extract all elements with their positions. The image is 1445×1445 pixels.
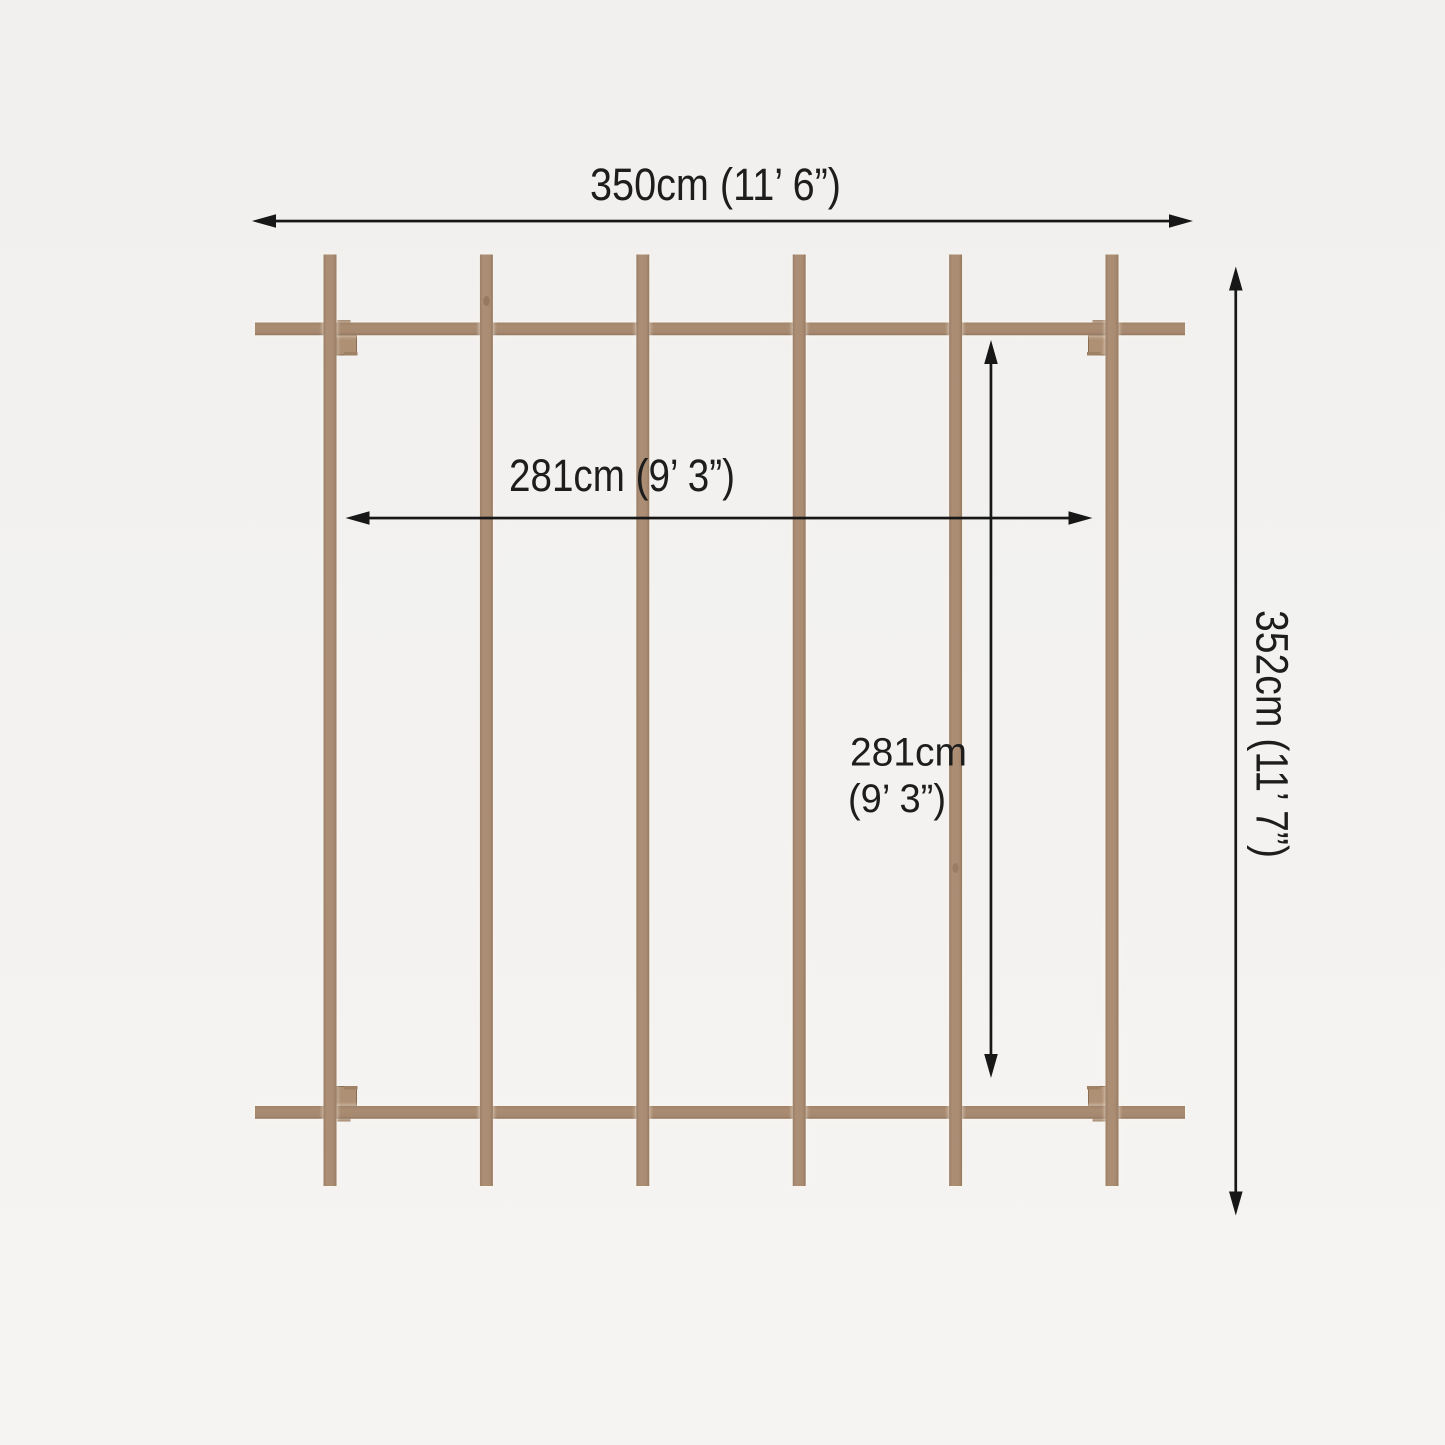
svg-text:281cm (9’ 3”): 281cm (9’ 3”): [509, 450, 735, 501]
svg-text:(9’ 3”): (9’ 3”): [848, 777, 946, 821]
svg-text:352cm (11’ 7”): 352cm (11’ 7”): [1247, 610, 1298, 858]
svg-text:350cm (11’ 6”): 350cm (11’ 6”): [590, 159, 841, 210]
svg-text:281cm: 281cm: [850, 731, 967, 775]
